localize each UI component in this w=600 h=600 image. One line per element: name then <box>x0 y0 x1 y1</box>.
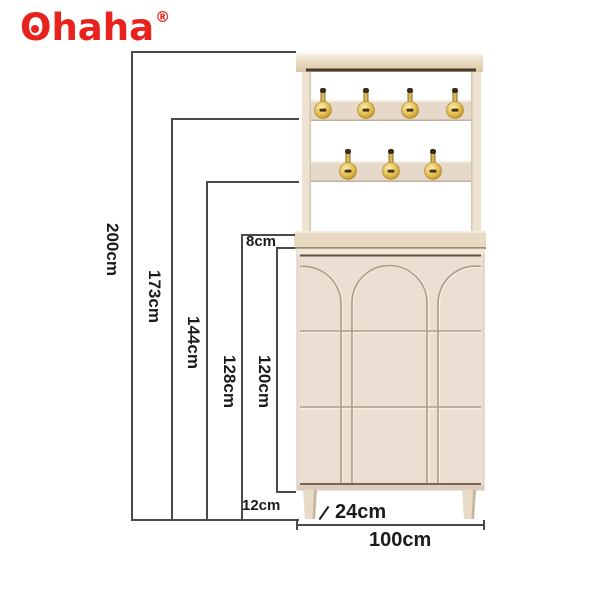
frame-left-post-shade <box>310 56 312 232</box>
dim-tick-cabinet-bottom <box>276 491 296 493</box>
leg-height-label: 12cm <box>242 497 280 514</box>
cabinet-top-dark-line <box>300 255 481 257</box>
dim-line-200cm <box>131 52 133 520</box>
hook-rail-top-highlight <box>311 100 471 102</box>
frame-right-post-shade <box>471 56 473 232</box>
cabinet-body <box>297 249 484 490</box>
height-label-200cm: 200cm <box>102 223 122 276</box>
top-shelf-dark-edge <box>306 69 476 72</box>
dim-line-100cm <box>297 524 484 526</box>
depth-label: 24cm <box>335 501 386 524</box>
shoe-cabinet <box>297 249 484 490</box>
dim-line-144cm <box>206 182 208 520</box>
dim-line-173cm <box>171 119 173 520</box>
dim-end-tick-left <box>296 520 298 530</box>
coat-rack-frame <box>296 53 483 232</box>
width-label: 100cm <box>369 529 431 552</box>
cabinet-legs <box>303 490 476 519</box>
dim-end-tick-right <box>483 520 485 530</box>
shelf-board-face <box>294 231 486 249</box>
dim-line-120cm <box>276 248 278 492</box>
furniture-illustration <box>0 0 600 600</box>
height-label-144cm: 144cm <box>183 316 203 369</box>
dim-tick-top-173 <box>171 118 299 120</box>
shelf-board-highlight <box>294 231 486 233</box>
cabinet-bottom-strip <box>297 485 484 490</box>
height-label-173cm: 173cm <box>144 270 164 323</box>
hook-rail-top-shadow <box>311 120 471 122</box>
dim-line-128cm <box>241 235 243 520</box>
hook-rail-bottom-shadow <box>311 181 471 183</box>
cabinet-top-shelf <box>294 231 486 249</box>
dim-baseline-floor <box>131 519 299 521</box>
dim-tick-top-120 <box>276 247 295 249</box>
dim-tick-top-200 <box>131 51 296 53</box>
cabinet-bottom-dark-line <box>300 483 481 485</box>
shelf-thickness-label: 8cm <box>246 233 276 250</box>
cabinet-top-strip <box>297 249 484 255</box>
product-dimension-diagram: Ohaha® <box>0 0 600 600</box>
height-label-120cm: 120cm <box>254 355 274 408</box>
top-shelf-highlight <box>296 53 483 55</box>
dim-tick-top-144 <box>206 181 299 183</box>
height-label-128cm: 128cm <box>219 355 239 408</box>
